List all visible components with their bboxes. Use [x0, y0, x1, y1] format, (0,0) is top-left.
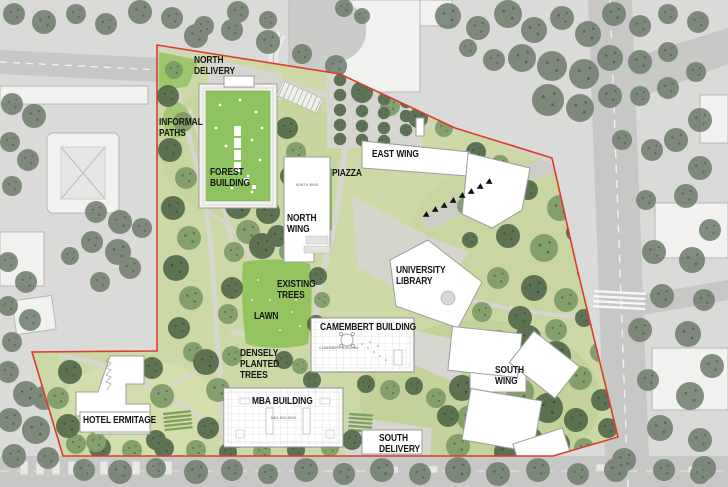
map-label-forest-building: FOREST BUILDING	[210, 167, 250, 189]
roof-caption-mba: MBA BUILDING	[271, 417, 296, 421]
map-label-camembert-building: CAMEMBERT BUILDING	[320, 322, 416, 333]
campus-site-plan: NORTH DELIVERY INFORMAL PATHS FOREST BUI…	[0, 0, 728, 487]
roof-caption-north-wing: NORTH WING	[296, 184, 318, 188]
lawn-area	[242, 259, 312, 348]
map-label-north-wing: NORTH WING	[287, 213, 316, 235]
map-label-mba-building: MBA BUILDING	[252, 396, 313, 407]
map-label-south-wing: SOUTH WING	[495, 365, 524, 387]
map-label-hotel-ermitage: HOTEL ERMITAGE	[83, 415, 156, 426]
map-label-piazza: PIAZZA	[332, 168, 362, 179]
piazza-kiosk	[416, 118, 424, 136]
map-label-existing-trees: EXISTING TREES	[277, 279, 316, 301]
map-label-informal-paths: INFORMAL PATHS	[159, 117, 203, 139]
roof-caption-camembert: CAMEMBERT BUILDING	[319, 347, 359, 351]
offsite-courtyard-building	[47, 133, 119, 213]
forest-building-footprint	[199, 84, 277, 208]
map-label-north-delivery: NORTH DELIVERY	[194, 55, 235, 77]
map-label-east-wing: EAST WING	[372, 149, 419, 160]
map-label-densely-planted-trees: DENSELY PLANTED TREES	[240, 348, 279, 382]
site-plan-map	[0, 0, 728, 487]
map-label-university-library: UNIVERSITY LIBRARY	[396, 265, 446, 287]
north-delivery-building	[224, 76, 254, 87]
map-label-lawn: LAWN	[254, 311, 278, 322]
map-label-south-delivery: SOUTH DELIVERY	[379, 433, 420, 455]
